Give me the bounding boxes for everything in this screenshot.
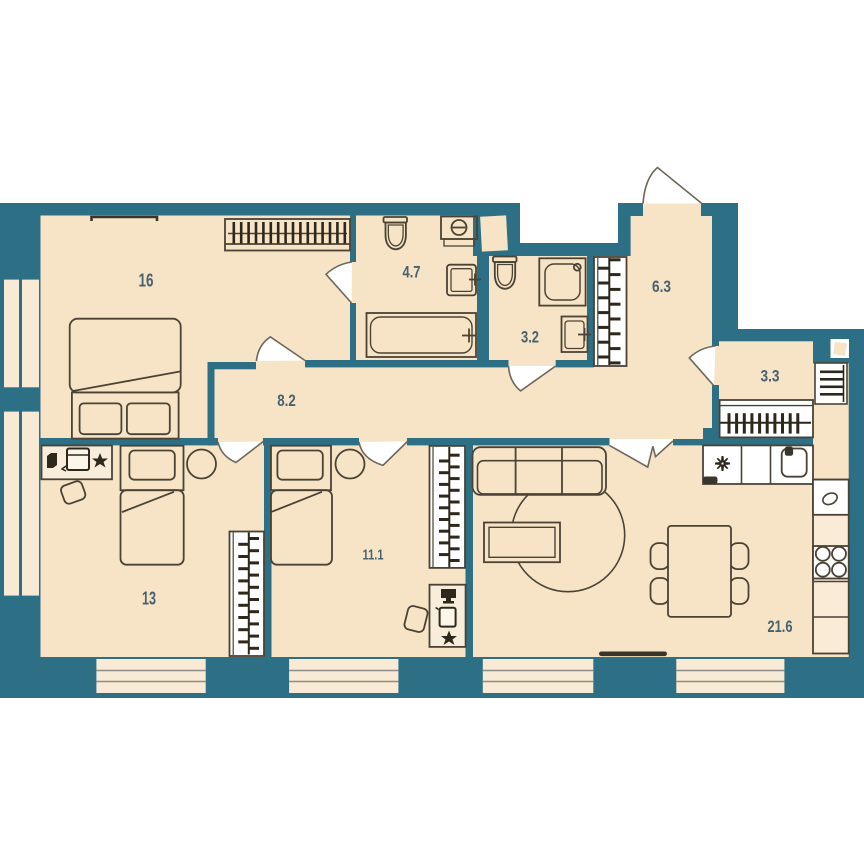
svg-text:4.7: 4.7 <box>403 264 421 282</box>
svg-text:3.3: 3.3 <box>761 368 780 386</box>
svg-text:3.2: 3.2 <box>521 329 539 347</box>
svg-text:13: 13 <box>142 589 156 609</box>
svg-text:6.3: 6.3 <box>652 278 671 296</box>
svg-text:11.1: 11.1 <box>363 548 384 564</box>
svg-text:21.6: 21.6 <box>768 618 793 636</box>
svg-text:16: 16 <box>139 271 154 291</box>
svg-text:8.2: 8.2 <box>277 392 296 410</box>
